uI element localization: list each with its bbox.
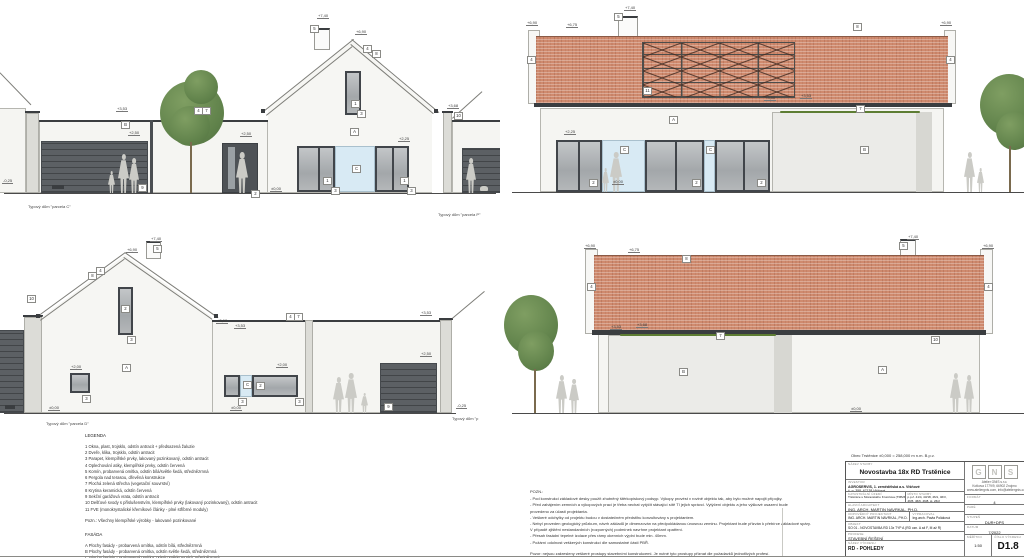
ref-tag-3: 3 xyxy=(357,110,366,118)
downpipe xyxy=(150,120,153,193)
eave-band xyxy=(534,103,952,107)
level-marker: +2,00 xyxy=(70,365,82,370)
ground-line xyxy=(4,193,496,194)
misto-value-2: 46/5, 46/6, 46/8, st. 26/2 xyxy=(908,500,963,501)
ref-tag-10: 10 xyxy=(931,336,940,344)
window-mullion xyxy=(392,148,394,190)
person-silhouette xyxy=(118,154,129,193)
legend-note: Pozn.: Všechny klempířské výrobky - lako… xyxy=(85,518,415,524)
cell-investor: INVESTOR AGROSERVIS, 1. zemědělská a.s. … xyxy=(846,480,964,492)
ref-tag-3: 3 xyxy=(82,395,91,403)
ref-tag-3: 3 xyxy=(127,336,136,344)
ground-line xyxy=(512,192,1024,193)
field-label: NÁZEV VÝKRESU xyxy=(848,542,962,546)
cell-odpovedny: ODPOVĚDNÝ PROJEKTANT ING. ARCH. MARTIN N… xyxy=(846,512,910,521)
flat-roof-volume xyxy=(608,335,792,413)
pilaster xyxy=(24,317,42,413)
objekt-value: SO 01 - NOVOSTAVBA RD 13x TYP A (RD ozn.… xyxy=(848,526,962,530)
cell-nazev-vykresu: NÁZEV VÝKRESU RD - POHLEDY xyxy=(846,541,964,556)
ref-tag-A: A xyxy=(669,116,678,124)
tree-trunk xyxy=(1009,146,1011,192)
ref-tag-4: 4 xyxy=(587,283,596,291)
person-silhouette xyxy=(964,375,974,413)
tree-canopy xyxy=(518,331,554,371)
ref-tag-9: 9 xyxy=(138,184,147,192)
child-silhouette xyxy=(602,168,609,192)
ref-tag-2: 2 xyxy=(757,179,766,187)
ref-tag-3: 3 xyxy=(331,187,340,195)
legend-items: 1 Okna, plast, trojsklo, odstín antracit… xyxy=(85,444,415,513)
window-mullion xyxy=(318,148,320,190)
pv-panel-array xyxy=(642,42,795,98)
level-marker: +3,50 xyxy=(764,96,776,101)
ref-tag-2: 2 xyxy=(589,179,598,187)
child-silhouette xyxy=(108,171,115,193)
gutter-end xyxy=(36,314,40,318)
ref-tag-A: A xyxy=(122,364,131,372)
window-mullion xyxy=(578,142,580,190)
roof-edge-line xyxy=(0,70,31,105)
cell-projektant-vypracoval: ODPOVĚDNÝ PROJEKTANT ING. ARCH. MARTIN N… xyxy=(846,512,964,522)
green-roof-line xyxy=(620,334,776,336)
gutter-end xyxy=(434,109,438,113)
level-marker: +7,40 xyxy=(907,235,919,240)
ref-tag-1: 1 xyxy=(400,177,409,185)
level-marker: +2,00 xyxy=(276,363,288,368)
datum-value: 7/2022 xyxy=(967,530,1022,535)
ref-tag-B: B xyxy=(860,146,869,154)
field-label: ČÍSLO VÝKRESU xyxy=(994,536,1022,540)
cell-hlavni-architekt: HLAVNÍ ARCHITEKT ING. ARCH. MARTIN NAVRK… xyxy=(846,503,964,512)
cell-profese: PROFESE STAVEBNÍ ŘEŠENÍ xyxy=(846,532,964,541)
level-marker: +3,68 xyxy=(216,319,228,324)
atelier-logo: G N S xyxy=(967,465,1022,479)
scale-value: 1:50 xyxy=(967,543,989,548)
green-roof-line xyxy=(780,111,920,113)
pilaster xyxy=(440,320,452,413)
cell-format: FORMÁT 4 xyxy=(965,495,1024,505)
ref-tag-2: 2 xyxy=(692,179,701,187)
ref-tag-8: 8 xyxy=(853,23,862,31)
cell-cislo-vykresu: ČÍSLO VÝKRESU D1.8 xyxy=(992,535,1024,556)
cell-vypracoval: VYPRACOVAL Ing.arch. Pavla Poláková xyxy=(910,512,964,521)
field-label: PARÉ xyxy=(967,506,1022,510)
ref-tag-10: 10 xyxy=(27,295,36,303)
parapet-cap xyxy=(452,120,500,122)
parapet-cap xyxy=(212,320,452,322)
level-marker: +3,53 xyxy=(420,311,432,316)
elevation-bottom-left: Typový dům "parcela D" Typový dům "p +7,… xyxy=(0,235,512,435)
datum-note: Obec Trstěnice ±0,000 = 258,000 m n.m. B… xyxy=(851,453,935,458)
facade-title: FASÁDA xyxy=(85,532,415,539)
author-name: Ing.arch. Pavla Poláková xyxy=(912,516,962,520)
person-silhouette xyxy=(236,152,248,193)
flat-roof-volume xyxy=(772,112,932,192)
level-marker: ±0,00 xyxy=(230,406,242,411)
title-block: NÁZEV STAVBY Novostavba 18x RD Trstěnice… xyxy=(845,461,1024,557)
ref-tag-2: 2 xyxy=(256,382,265,390)
tree-canopy xyxy=(996,112,1024,150)
level-marker: +2,25 xyxy=(564,130,576,135)
ref-tag-9: 9 xyxy=(384,403,393,411)
notes-lines: - Pod konstrukci základové desky použít … xyxy=(530,496,860,546)
parapet-cap xyxy=(442,111,453,113)
level-marker: +3,53 xyxy=(800,94,812,99)
ref-tag-10: 10 xyxy=(454,112,463,120)
title-block-left: NÁZEV STAVBY Novostavba 18x RD Trstěnice… xyxy=(846,462,965,556)
level-marker: ±0,00 xyxy=(48,406,60,411)
pilaster xyxy=(305,320,313,413)
volume-shadow xyxy=(916,112,932,192)
notes-title: POZN.: xyxy=(530,489,860,495)
door-label-plate xyxy=(52,185,64,189)
window xyxy=(224,375,240,397)
ref-tag-3: 3 xyxy=(407,187,416,195)
door-label-plate xyxy=(5,405,15,409)
format-value: 4 xyxy=(967,500,1022,505)
level-marker: +2,50 xyxy=(128,131,140,136)
ref-tag-4: 4 xyxy=(527,56,536,64)
cell-objekt: OBJEKT SO 01 - NOVOSTAVBA RD 13x TYP A (… xyxy=(846,522,964,532)
ref-tag-5: 5 xyxy=(614,13,623,21)
level-marker: +3,68 xyxy=(447,104,459,109)
drawing-number: D1.8 xyxy=(994,541,1022,552)
stupen-value: DUR+DPS xyxy=(967,520,1022,525)
elevation-caption: Typový dům "p xyxy=(452,416,478,421)
person-silhouette xyxy=(610,152,622,192)
door-glazing xyxy=(228,147,235,189)
ref-tag-5: 5 xyxy=(310,25,319,33)
person-silhouette xyxy=(569,379,579,413)
roof-edge-line xyxy=(452,291,485,319)
ref-tag-C: C xyxy=(620,146,629,154)
person-silhouette xyxy=(556,375,567,413)
level-marker: +3,53 xyxy=(610,325,622,330)
child-silhouette xyxy=(361,393,368,413)
ref-tag-1: 1 xyxy=(323,177,332,185)
ground-line xyxy=(512,413,1024,414)
project-title: Novostavba 18x RD Trstěnice xyxy=(848,469,962,477)
ref-tag-C: C xyxy=(706,146,715,154)
gutter-end xyxy=(261,109,265,113)
title-block-right: G N S Atelier GNIS s.r.o. Kotkova 1779/9… xyxy=(965,462,1024,556)
tree-trunk xyxy=(190,142,192,193)
level-marker: +7,40 xyxy=(317,14,329,19)
ref-tag-3: 3 xyxy=(238,398,247,406)
note-line: - Požární odolnost veškerých konstrukcí … xyxy=(530,540,860,546)
tree-trunk xyxy=(534,369,536,413)
ref-tag-C: C xyxy=(243,381,252,389)
cell-katastr-misto: KATASTRÁLNÍ ÚZEMÍ Trstěnice u Moravského… xyxy=(846,492,964,503)
ref-tag-1: 1 xyxy=(351,100,360,108)
field-label: MĚŘÍTKO xyxy=(967,536,989,540)
level-marker: -0,25 xyxy=(456,404,467,409)
level-marker: ±0,00 xyxy=(270,187,282,192)
elevation-bottom-right: +7,40+6,90+6,75+6,90+3,53+3,68±0,005844B… xyxy=(512,235,1024,435)
level-marker: +6,90 xyxy=(355,30,367,35)
level-marker: +6,90 xyxy=(940,21,952,26)
ground-line xyxy=(4,413,456,414)
ref-tag-4: 4 xyxy=(96,267,105,275)
ref-tag-5: 5 xyxy=(153,245,162,253)
ref-tag-8: 8 xyxy=(372,50,381,58)
level-marker: -0,25 xyxy=(2,179,13,184)
notes-block: POZN.: - Pod konstrukci základové desky … xyxy=(530,489,860,558)
ref-tag-7: 7 xyxy=(202,107,211,115)
level-marker: +2,50 xyxy=(240,132,252,137)
person-silhouette xyxy=(950,373,961,413)
level-marker: +6,90 xyxy=(584,244,596,249)
level-marker: ±0,00 xyxy=(612,180,624,185)
tree-canopy xyxy=(184,70,218,104)
cell-meritko-cislo: MĚŘÍTKO 1:50 ČÍSLO VÝKRESU D1.8 xyxy=(965,535,1024,556)
level-marker: +6,75 xyxy=(566,23,578,28)
gable-window xyxy=(345,71,361,115)
cell-pare: PARÉ xyxy=(965,505,1024,515)
garage-door xyxy=(0,330,24,413)
logo-letter-s: S xyxy=(1004,465,1018,479)
ref-tag-2: 2 xyxy=(251,190,260,198)
cell-stupen: STUPEŇ DUR+DPS xyxy=(965,515,1024,525)
window-mullion xyxy=(675,142,677,190)
level-marker: +6,75 xyxy=(628,248,640,253)
volume-shadow xyxy=(774,335,792,413)
level-marker: +6,90 xyxy=(126,248,138,253)
level-marker: +2,50 xyxy=(420,352,432,357)
elevation-caption: Typový dům "parcela C" xyxy=(28,204,71,209)
elevation-top-left: Typový dům "parcela C" Typový dům "parce… xyxy=(0,8,500,223)
atelier-web: www.ateliergnis.com, info@ateliergnis.co… xyxy=(967,488,1022,492)
parapet-cap xyxy=(39,120,268,122)
ref-tag-4: 4 xyxy=(984,283,993,291)
ref-tag-C: C xyxy=(352,165,361,173)
logo-letter-g: G xyxy=(972,465,986,479)
legend-block: LEGENDA 1 Okna, plast, trojsklo, odstín … xyxy=(85,433,415,558)
person-silhouette xyxy=(345,373,357,413)
level-marker: +7,40 xyxy=(624,6,636,11)
sheet-fold-mark xyxy=(782,508,783,556)
legend-item: 11 FVE (monokrystalické křemíkové články… xyxy=(85,507,415,513)
ref-tag-4: 4 xyxy=(363,45,372,53)
ref-tag-7: 7 xyxy=(294,313,303,321)
cell-nazev-stavby: NÁZEV STAVBY Novostavba 18x RD Trstěnice xyxy=(846,462,964,480)
ref-tag-7: 7 xyxy=(856,105,865,113)
person-silhouette xyxy=(333,377,344,413)
level-marker: +3,53 xyxy=(116,107,128,112)
elevation-top-right: +7,40+6,90+6,75+6,90+3,50+3,53+2,25±0,00… xyxy=(512,0,1024,215)
elevation-caption: Typový dům "parcela P" xyxy=(438,212,480,217)
person-silhouette xyxy=(964,152,975,192)
level-marker: +6,90 xyxy=(982,244,994,249)
ref-tag-A: A xyxy=(878,366,887,374)
field-label: NÁZEV STAVBY xyxy=(848,463,962,467)
ref-tag-8: 8 xyxy=(682,255,691,263)
cell-datum: DATUM 7/2022 xyxy=(965,525,1024,535)
pilaster xyxy=(26,113,39,193)
ref-tag-5: 5 xyxy=(899,242,908,250)
drawing-sheet: Typový dům "parcela C" Typový dům "parce… xyxy=(0,0,1024,558)
cell-katastr: KATASTRÁLNÍ ÚZEMÍ Trstěnice u Moravského… xyxy=(846,492,906,502)
katastr-value: Trstěnice u Moravského Krumlova (TMMK) xyxy=(848,496,903,500)
person-silhouette xyxy=(466,158,476,193)
level-marker: +7,40 xyxy=(150,237,162,242)
ref-tag-2: 2 xyxy=(121,305,130,313)
sheet-border-bottom xyxy=(0,556,1024,557)
tiled-roof xyxy=(594,255,984,330)
window-mullion xyxy=(743,142,745,190)
level-marker: ±0,00 xyxy=(850,407,862,412)
elevation-caption: Typový dům "parcela D" xyxy=(46,421,89,426)
ref-tag-3: 3 xyxy=(295,398,304,406)
drawing-name: RD - POHLEDY xyxy=(848,546,962,552)
cell-meritko: MĚŘÍTKO 1:50 xyxy=(965,535,992,556)
window xyxy=(70,373,90,393)
ref-tag-7: 7 xyxy=(716,332,725,340)
ref-tag-A: A xyxy=(350,128,359,136)
pilaster xyxy=(443,112,452,193)
legend-title: LEGENDA xyxy=(85,433,415,440)
ref-tag-B: B xyxy=(121,121,130,129)
ref-tag-B: B xyxy=(679,368,688,376)
level-marker: +2,25 xyxy=(398,137,410,142)
parapet-cap xyxy=(439,318,453,320)
engineer-name: ING. ARCH. MARTIN NAVRKAL, PH.D. xyxy=(848,516,907,520)
cell-misto: MÍSTO STAVBY p.p.č. 41/4, 43/18, 46/1, 4… xyxy=(906,492,965,502)
window xyxy=(297,146,335,192)
child-silhouette xyxy=(977,168,984,192)
ref-tag-11: 11 xyxy=(643,87,652,95)
logo-letter-n: N xyxy=(988,465,1002,479)
window xyxy=(375,146,409,192)
level-marker: +3,68 xyxy=(636,323,648,328)
level-marker: +6,90 xyxy=(526,21,538,26)
cell-atelier: G N S Atelier GNIS s.r.o. Kotkova 1779/9… xyxy=(965,462,1024,495)
ref-tag-4: 4 xyxy=(946,56,955,64)
dog-silhouette xyxy=(480,186,488,191)
level-marker: +3,53 xyxy=(234,324,246,329)
